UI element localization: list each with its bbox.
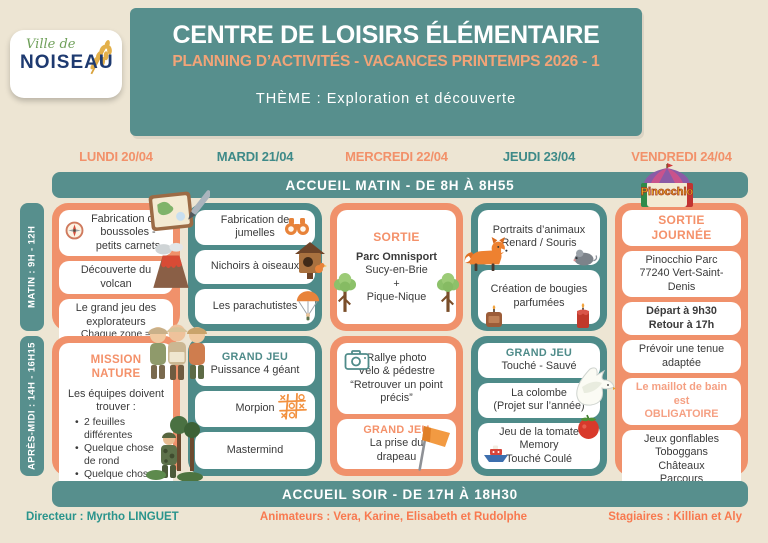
cell-wednesday-morning: SORTIE Parc Omnisport Sucy-en-Brie + Piq…: [330, 203, 463, 331]
note-text: Le maillot de bain est: [628, 381, 735, 408]
activity-text: Les parachutistes: [213, 300, 298, 313]
activity-text: Découverte du volcan: [65, 264, 167, 291]
trip-place: Parc Omnisport: [356, 251, 437, 264]
mission-bullet: Quelque chose de rond: [75, 442, 167, 468]
candle-jar-icon: [484, 304, 504, 332]
cell-monday-afternoon: MISSION NATURE Les équipes doivent trouv…: [52, 336, 180, 476]
activity-card-birdhouse: Nichoirs à oiseaux: [195, 250, 315, 285]
trip-heading-card: SORTIE JOURNÉE: [622, 210, 741, 246]
trip-place: Pinocchio Parc: [645, 254, 717, 267]
parachute-icon: [295, 289, 321, 325]
activity-text: Memory: [520, 439, 559, 452]
mouse-icon: [572, 247, 598, 270]
activity-card-photo-rally: Rallye photo Vélo & pédestre “Retrouver …: [337, 343, 456, 414]
day-header-monday: LUNDI 20/04: [52, 149, 180, 164]
afternoon-time-label: APRÈS-MIDI : 14H - 16H15: [27, 342, 38, 470]
activity-text: Nichoirs à oiseaux: [211, 260, 299, 273]
day-header-thursday: JEUDI 23/04: [471, 149, 607, 164]
grand-jeu-heading: GRAND JEU: [506, 347, 572, 360]
camera-icon: [344, 350, 370, 375]
activity-text: Touché Coulé: [506, 453, 572, 466]
activity-text: Jeu de la tomate: [499, 426, 579, 439]
theme-line: THÈME : Exploration et découverte: [130, 91, 642, 107]
trip-picnic: Pique-Nique: [367, 291, 426, 304]
return-time: Retour à 17h: [649, 319, 714, 332]
activity-text: précis”: [380, 392, 412, 405]
trip-card-omnisport: SORTIE Parc Omnisport Sucy-en-Brie + Piq…: [337, 210, 456, 324]
boat-icon: [482, 443, 510, 467]
activity-card-mastermind: Mastermind: [195, 432, 315, 469]
trip-heading: SORTIE: [373, 230, 419, 245]
activity-text: parfumées: [513, 297, 564, 310]
cell-thursday-morning: Portraits d’animaux Renard / Souris: [471, 203, 607, 331]
note-text: adaptée: [662, 357, 701, 370]
dove-icon: [570, 367, 616, 415]
departure-time: Départ à 9h30: [646, 305, 717, 318]
compass-icon: [65, 221, 84, 244]
activity-card-animal-portraits: Portraits d’animaux Renard / Souris: [478, 210, 600, 265]
cell-thursday-afternoon: GRAND JEU Touché - Sauvé La colombe (Pro…: [471, 336, 607, 476]
cell-tuesday-morning: Fabrication de jumelles Nichoirs à oisea…: [188, 203, 322, 331]
mission-intro: trouver :: [96, 401, 136, 414]
cell-friday-full-day: SORTIE JOURNÉE Pinocchio Parc 77240 Vert…: [615, 203, 748, 476]
attraction-item: Jeux gonflables: [644, 433, 719, 446]
logo-city-name: NOISEAU: [20, 51, 112, 76]
activity-card-compass: Fabrication des boussoles - petits carne…: [59, 210, 173, 256]
mission-bullet: 2 feuilles différentes: [75, 416, 167, 442]
animators-entry: Animateurs : Vera, Karine, Elisabeth et …: [260, 511, 527, 523]
activity-text: Mastermind: [227, 444, 283, 457]
swimsuit-note-card: Le maillot de bain est OBLIGATOIRE: [622, 378, 741, 424]
attraction-item: Toboggans: [655, 446, 708, 459]
activity-text: Morpion: [235, 402, 274, 415]
day-header-tuesday: MARDI 21/04: [188, 149, 322, 164]
page-title: CENTRE DE LOISIRS ÉLÉMENTAIRE: [130, 21, 642, 50]
grand-jeu-heading: GRAND JEU: [222, 351, 288, 364]
activity-text: Rallye photo: [366, 352, 426, 365]
mission-nature-card: MISSION NATURE Les équipes doivent trouv…: [59, 343, 173, 497]
candle-icon: [574, 303, 592, 333]
activity-text: Fabrication des boussoles - petits carne…: [89, 213, 167, 253]
morning-reception-text: ACCUEIL MATIN - DE 8H À 8H55: [286, 178, 515, 193]
grand-jeu-card: GRAND JEU La prise du drapeau: [337, 419, 456, 469]
activity-text: Renard / Souris: [501, 237, 576, 250]
activity-text: Création de bougies: [491, 283, 588, 296]
footer-staff-row: Directeur : Myrtho LINGUET Animateurs : …: [26, 511, 742, 523]
activity-card-candles: Création de bougies parfumées: [478, 270, 600, 325]
afternoon-time-tab: APRÈS-MIDI : 14H - 16H15: [20, 336, 44, 476]
evening-reception-banner: ACCUEIL SOIR - DE 17H À 18H30: [52, 481, 748, 507]
morning-reception-banner: ACCUEIL MATIN - DE 8H À 8H55: [52, 172, 748, 198]
cell-monday-morning: Fabrication des boussoles - petits carne…: [52, 203, 180, 331]
outfit-note-card: Prévoir une tenue adaptée: [622, 340, 741, 373]
trip-location-card: Pinocchio Parc 77240 Vert-Saint-Denis: [622, 251, 741, 297]
birdhouse-icon: [293, 240, 327, 284]
activity-card-morpion: Morpion: [195, 391, 315, 428]
activity-text: Puissance 4 géant: [211, 364, 300, 377]
day-header-wednesday: MERCREDI 22/04: [330, 149, 463, 164]
attraction-item: Châteaux: [658, 460, 704, 473]
activity-text: Touché - Sauvé: [501, 360, 576, 373]
activity-card-parachutists: Les parachutistes: [195, 289, 315, 324]
cell-wednesday-afternoon: Rallye photo Vélo & pédestre “Retrouver …: [330, 336, 463, 476]
trip-heading: SORTIE JOURNÉE: [628, 213, 735, 243]
activity-card-volcano: Découverte du volcan: [59, 261, 173, 294]
grand-jeu-card: GRAND JEU Puissance 4 géant: [195, 343, 315, 386]
tic-tac-toe-icon: [277, 393, 307, 425]
trip-schedule-card: Départ à 9h30 Retour à 17h: [622, 302, 741, 335]
tree-icon: [333, 272, 357, 318]
flag-icon: [414, 421, 454, 477]
mission-intro: Les équipes doivent: [68, 388, 164, 401]
evening-reception-text: ACCUEIL SOIR - DE 17H À 18H30: [282, 487, 518, 502]
city-logo: Ville de NOISEAU: [10, 30, 122, 98]
director-entry: Directeur : Myrtho LINGUET: [26, 511, 179, 523]
morning-time-label: MATIN : 9H - 12H: [27, 226, 38, 308]
activity-card-games-mix: Jeu de la tomate Memory Touché Coulé: [478, 423, 600, 469]
trip-plus: +: [393, 278, 399, 291]
note-text: OBLIGATOIRE: [645, 408, 719, 421]
tomato-icon: [575, 413, 602, 444]
activity-text: La colombe: [511, 387, 567, 400]
binoculars-icon: [284, 216, 310, 240]
planning-grid: LUNDI 20/04 MARDI 21/04 MERCREDI 22/04 J…: [20, 145, 748, 507]
activity-text: Le grand jeu des explorateurs: [65, 302, 167, 329]
morning-time-tab: MATIN : 9H - 12H: [20, 203, 44, 331]
trip-city: Sucy-en-Brie: [365, 264, 427, 277]
activity-text: “Retrouver un point: [350, 379, 442, 392]
activity-planning-poster: Ville de NOISEAU CENTRE DE LOISIRS ÉLÉME…: [0, 0, 768, 543]
fox-icon: [462, 236, 508, 276]
trip-address: 77240 Vert-Saint-Denis: [628, 267, 735, 294]
header-block: CENTRE DE LOISIRS ÉLÉMENTAIRE PLANNING D…: [130, 8, 642, 136]
cell-tuesday-afternoon: GRAND JEU Puissance 4 géant Morpion: [188, 336, 322, 476]
mission-heading: MISSION NATURE: [65, 353, 167, 382]
day-header-friday: VENDREDI 24/04: [615, 149, 748, 164]
note-text: Prévoir une tenue: [639, 343, 724, 356]
trainees-entry: Stagiaires : Killian et Aly: [608, 511, 742, 523]
tree-icon: [436, 272, 460, 318]
activity-text: drapeau: [377, 451, 417, 464]
page-subtitle: PLANNING D’ACTIVITÉS - VACANCES PRINTEMP…: [130, 53, 642, 71]
